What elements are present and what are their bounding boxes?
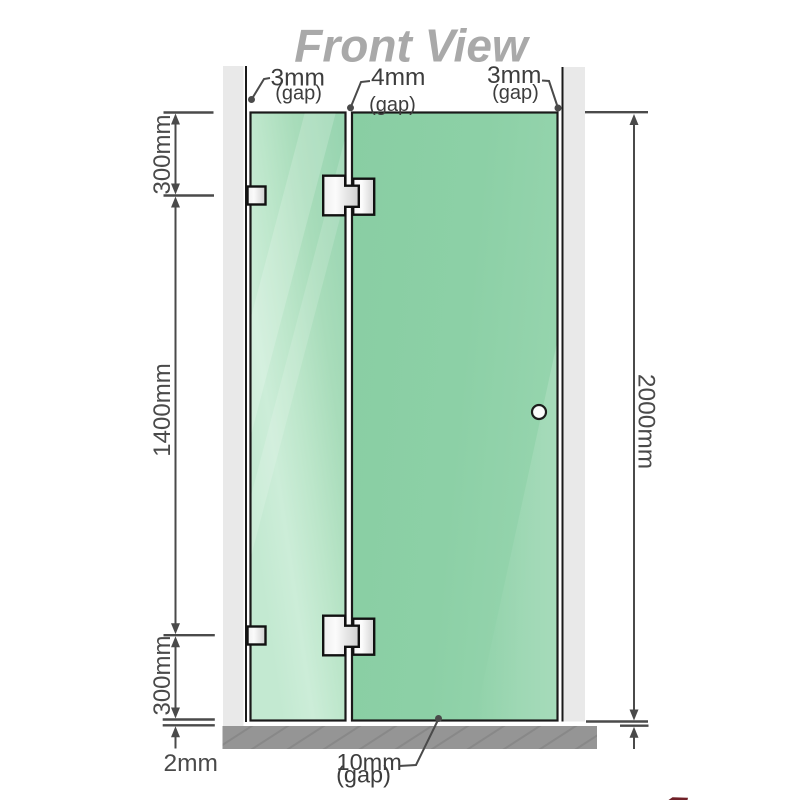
svg-text:300mm: 300mm bbox=[149, 635, 176, 715]
svg-text:(gap): (gap) bbox=[336, 762, 391, 788]
svg-text:(gap): (gap) bbox=[369, 94, 416, 116]
svg-text:2mm: 2mm bbox=[164, 750, 218, 777]
svg-text:(gap): (gap) bbox=[275, 83, 322, 105]
svg-text:2000mm: 2000mm bbox=[633, 374, 660, 469]
svg-text:1400mm: 1400mm bbox=[149, 363, 176, 456]
svg-text:4mm: 4mm bbox=[371, 64, 425, 91]
svg-text:(gap): (gap) bbox=[492, 82, 539, 104]
svg-text:300mm: 300mm bbox=[149, 114, 176, 194]
